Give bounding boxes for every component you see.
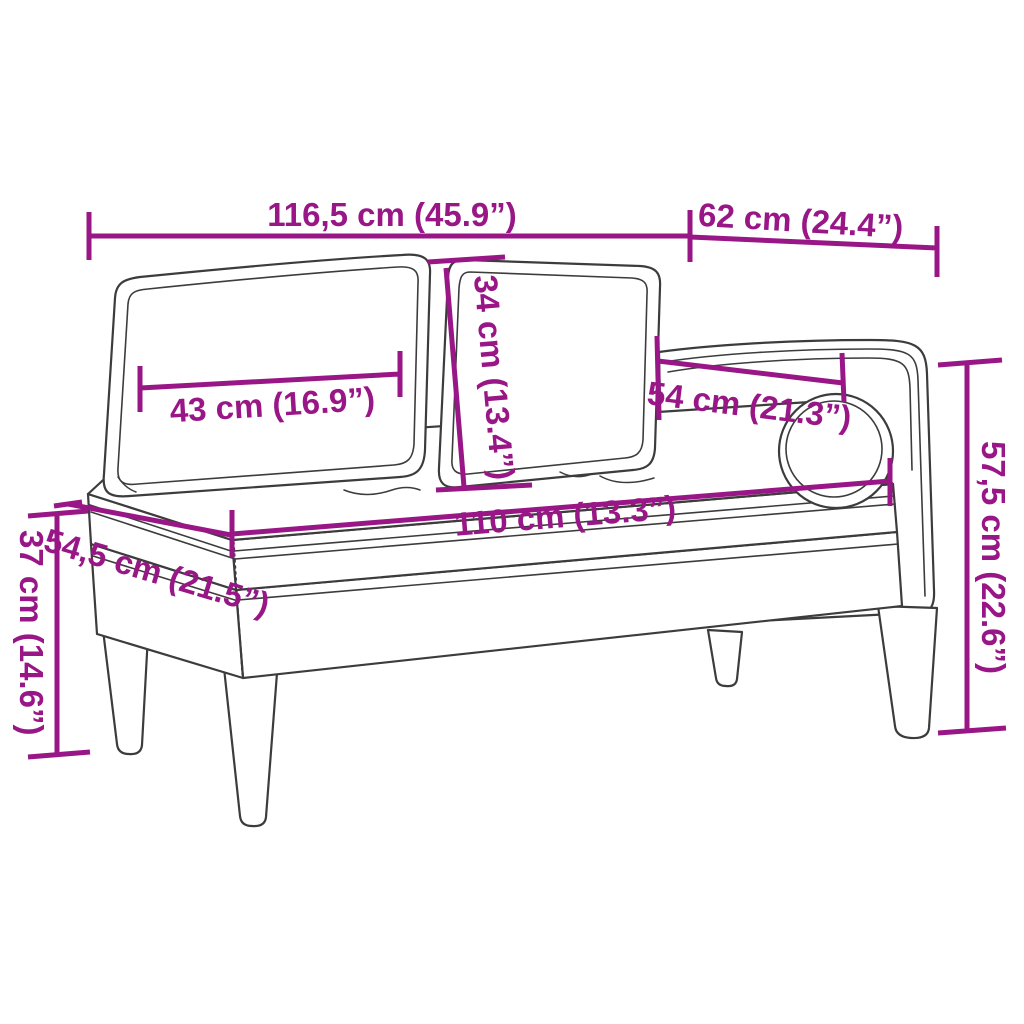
leg-rear-right xyxy=(708,630,742,686)
dim-total-height-label: 57,5 cm (22.6”) xyxy=(975,441,1012,674)
leg-front-right xyxy=(878,606,937,738)
dim-total-width-label: 116,5 cm (45.9”) xyxy=(267,196,517,233)
dim-seat-height-label: 37 cm (14.6”) xyxy=(13,530,50,735)
leg-front-middle xyxy=(224,668,277,826)
dimension-diagram: 116,5 cm (45.9”) 62 cm (24.4”) 43 cm (16… xyxy=(0,0,1024,1024)
diagram-canvas: 116,5 cm (45.9”) 62 cm (24.4”) 43 cm (16… xyxy=(0,0,1024,1024)
chaise-drawing xyxy=(88,255,937,826)
leg-front-left xyxy=(103,630,148,754)
